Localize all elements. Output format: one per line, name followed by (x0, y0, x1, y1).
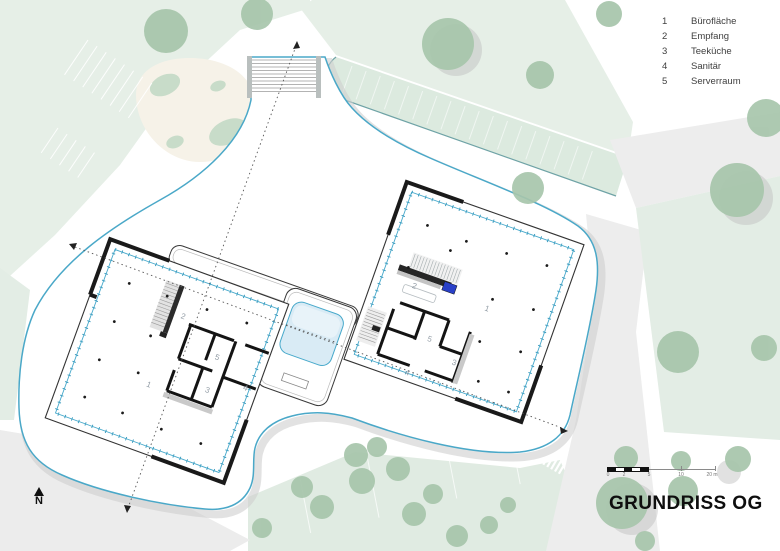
legend-number: 5 (662, 76, 691, 87)
legend-number: 2 (662, 31, 691, 42)
legend-item: 5 Serverraum (662, 76, 741, 91)
scale-bar-line (649, 469, 715, 470)
legend-label: Serverraum (691, 76, 741, 87)
legend-label: Bürofläche (691, 16, 736, 27)
scale-label: 10 (678, 472, 684, 478)
scale-label: 0 (607, 472, 610, 478)
legend-item: 3 Teeküche (662, 46, 741, 61)
scale-label: 5 (648, 472, 651, 478)
legend-label: Sanitär (691, 61, 721, 72)
axis-arrow (69, 243, 77, 250)
legend-number: 3 (662, 46, 691, 57)
legend-item: 1 Bürofläche (662, 16, 741, 31)
legend-number: 4 (662, 61, 691, 72)
floor-plan-sheet: 1 2 5 4 3 (0, 0, 780, 551)
scale-bar: 0 2 5 10 20 m (607, 464, 717, 478)
legend-label: Teeküche (691, 46, 732, 57)
drawing-title: GRUNDRISS OG (609, 493, 763, 515)
legend: 1 Bürofläche 2 Empfang 3 Teeküche 4 Sani… (662, 16, 741, 91)
north-label: N (29, 496, 49, 507)
scale-label: 2 (623, 472, 626, 478)
legend-item: 4 Sanitär (662, 61, 741, 76)
legend-label: Empfang (691, 31, 729, 42)
scale-bar-segments (607, 467, 649, 472)
north-arrow: N (29, 487, 49, 507)
legend-number: 1 (662, 16, 691, 27)
scale-label: 20 m (706, 472, 717, 478)
legend-item: 2 Empfang (662, 31, 741, 46)
axis-arrow (293, 41, 300, 49)
